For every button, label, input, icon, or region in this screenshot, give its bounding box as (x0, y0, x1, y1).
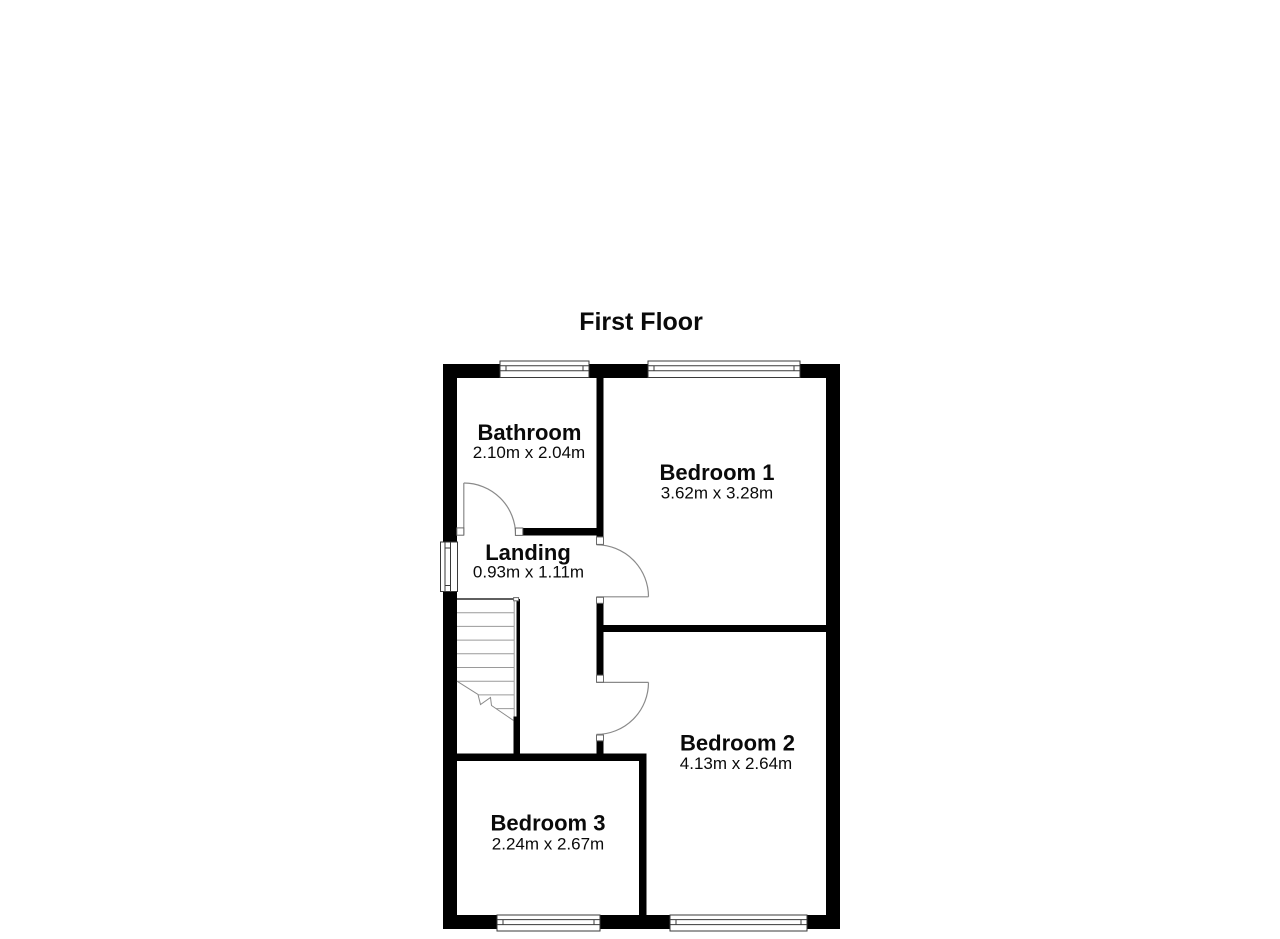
svg-text:Bedroom 1: Bedroom 1 (660, 460, 775, 485)
svg-text:4.13m x 2.64m: 4.13m x 2.64m (680, 754, 792, 773)
svg-text:2.10m x 2.04m: 2.10m x 2.04m (473, 443, 585, 462)
svg-text:2.24m x 2.67m: 2.24m x 2.67m (492, 835, 604, 854)
svg-text:3.62m x 3.28m: 3.62m x 3.28m (661, 484, 773, 503)
svg-text:First Floor: First Floor (579, 308, 703, 336)
svg-text:Landing: Landing (485, 540, 571, 565)
svg-text:Bedroom 3: Bedroom 3 (491, 811, 606, 836)
svg-text:Bathroom: Bathroom (478, 420, 582, 445)
svg-text:0.93m x 1.11m: 0.93m x 1.11m (473, 563, 584, 582)
svg-text:Bedroom 2: Bedroom 2 (680, 731, 795, 756)
